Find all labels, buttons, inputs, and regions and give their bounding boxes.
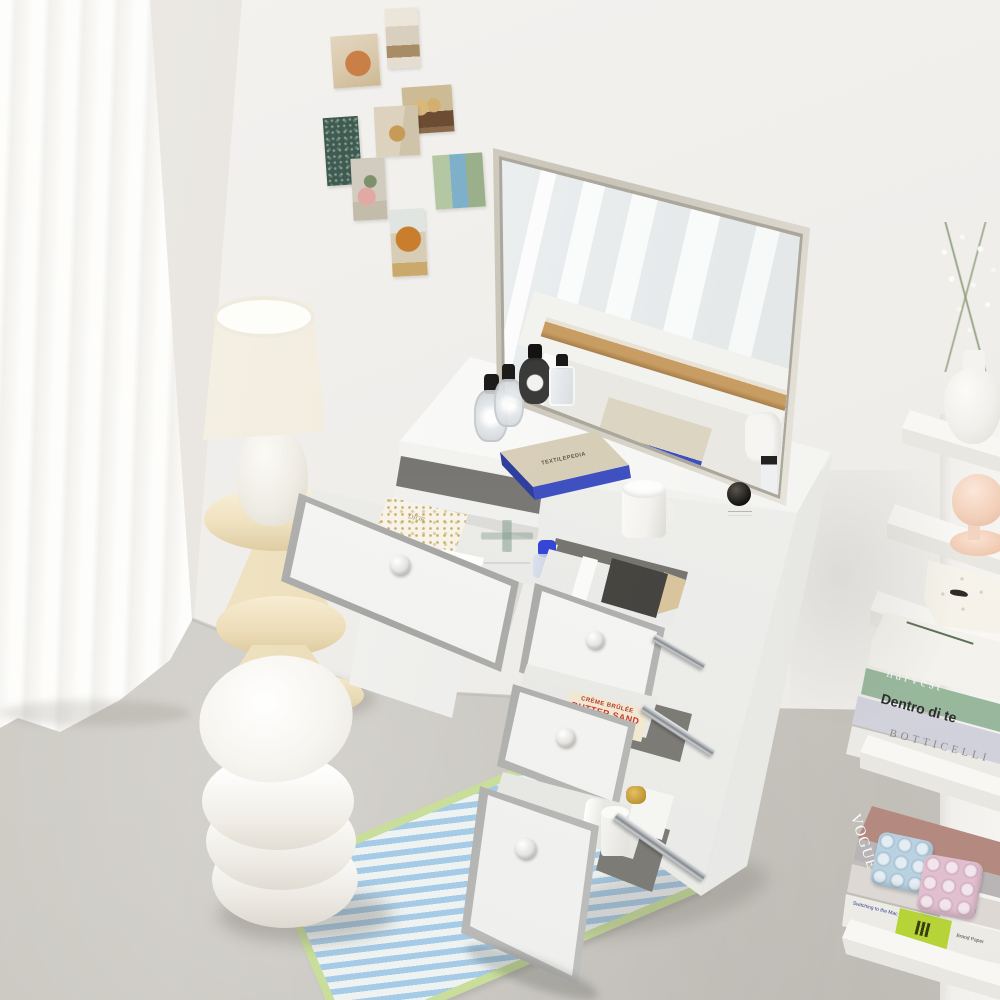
postcard-autumn-tree bbox=[389, 208, 427, 277]
curtain-hem-shadow bbox=[0, 700, 190, 726]
bubble-candle-pink bbox=[915, 853, 984, 921]
white-vase bbox=[944, 368, 1000, 444]
postcard-teddy bbox=[374, 105, 421, 157]
perfume-ring-bottle bbox=[519, 358, 551, 404]
reflected-mug bbox=[745, 412, 781, 462]
byredo-body bbox=[728, 502, 752, 532]
room-photo: harvest Dentro di te BOTTICELLI VOGUE VO… bbox=[0, 0, 1000, 1000]
gold-cap-jar bbox=[626, 786, 646, 804]
drawer3-knob bbox=[556, 728, 575, 747]
drawer1-knob bbox=[390, 555, 410, 575]
postcard-garden-collage bbox=[432, 152, 486, 209]
postcard-citrus bbox=[330, 33, 381, 88]
perfume-square-bottle bbox=[549, 366, 575, 406]
postcard-pink-pot bbox=[350, 157, 387, 221]
drawer2-knob bbox=[586, 631, 604, 649]
postcard-interior bbox=[384, 7, 420, 69]
lamp-shade-opening bbox=[213, 296, 315, 338]
mug-rim bbox=[622, 480, 666, 498]
reflected-perfume bbox=[761, 456, 777, 494]
candle-lid bbox=[481, 520, 533, 552]
drawer4-knob bbox=[515, 838, 536, 859]
